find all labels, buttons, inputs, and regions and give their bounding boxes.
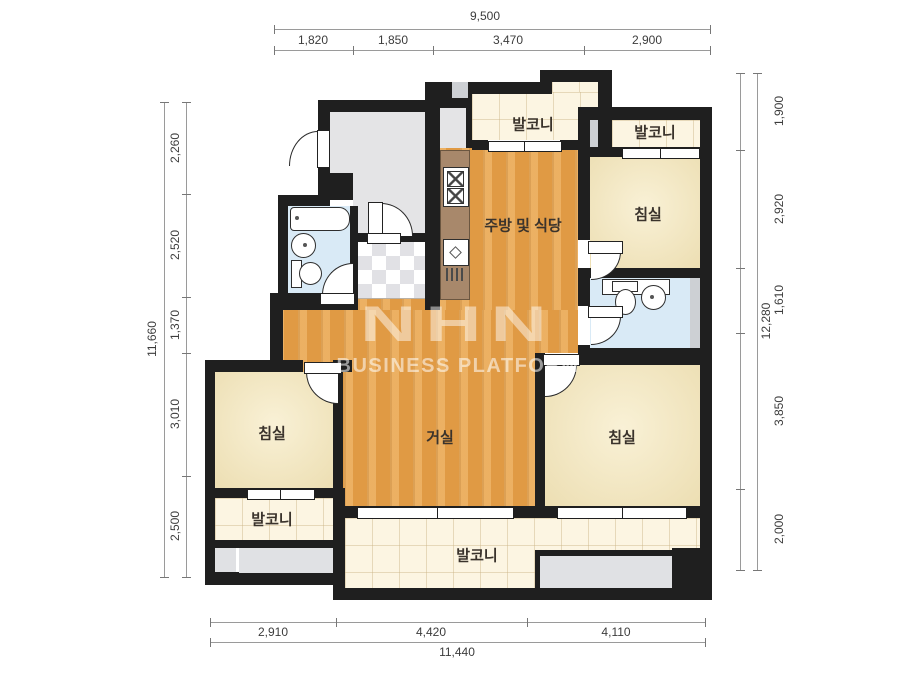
dim-bottom-total: 11,440 (439, 645, 475, 659)
dim-tick (182, 577, 191, 578)
kitchen-dining-label: 주방 및 식당 (484, 215, 561, 236)
dim-tick (210, 638, 211, 647)
dim-left-seg1: 2,520 (168, 230, 182, 260)
dim-tick (705, 618, 706, 627)
dim-line (210, 642, 705, 643)
dim-line (274, 29, 710, 30)
burner-icon (447, 188, 464, 204)
dim-tick (736, 333, 745, 334)
entry-door-leaf-icon (368, 202, 383, 237)
dim-right-seg4: 2,000 (772, 514, 786, 544)
bedroom-right-door-leaf-icon (543, 354, 580, 366)
wall (425, 112, 440, 310)
dim-tick (705, 638, 706, 647)
dim-bottom-seg2: 4,110 (601, 625, 630, 639)
wall (540, 70, 552, 94)
threshold-line (358, 298, 425, 299)
dim-top-seg2: 3,470 (493, 33, 523, 47)
dim-tick (736, 570, 745, 571)
wall (578, 140, 590, 240)
dim-tick (353, 46, 354, 55)
ac-platform (215, 548, 236, 572)
wall (580, 107, 712, 120)
window (488, 141, 562, 152)
faucet-icon (295, 216, 299, 220)
floor-plan-canvas: 발코니 발코니 침실 주방 및 식당 침실 거실 침실 발코니 발코니 NHN … (0, 0, 923, 676)
bathroom1-door-leaf-icon (320, 293, 355, 305)
dim-line (757, 73, 758, 570)
dim-tick (182, 353, 191, 354)
balcony-bottom-label: 발코니 (456, 545, 497, 566)
dim-right-seg3: 3,850 (772, 396, 786, 426)
hall-floor (535, 310, 578, 353)
dim-tick (336, 618, 337, 627)
dim-tick (182, 102, 191, 103)
dim-left-seg2: 1,370 (168, 310, 182, 340)
dim-tick (710, 25, 711, 34)
window (557, 507, 687, 519)
window (622, 148, 700, 159)
dim-left-seg0: 2,260 (168, 133, 182, 163)
dim-tick (753, 570, 762, 571)
dim-tick (182, 297, 191, 298)
burner-icon (447, 171, 464, 187)
entry-room-floor (330, 112, 425, 173)
dim-bottom-seg1: 4,420 (416, 625, 446, 639)
dim-top-total: 9,500 (470, 9, 500, 23)
wall (318, 173, 353, 200)
dim-line (210, 622, 705, 623)
dim-tick (210, 618, 211, 627)
balcony-top-right-label: 발코니 (634, 122, 675, 143)
wall (578, 353, 712, 365)
dim-right-total: 12,280 (759, 303, 773, 340)
dim-right-seg1: 2,920 (772, 194, 786, 224)
wall (333, 588, 712, 600)
dim-tick (274, 46, 275, 55)
dim-left-seg4: 2,500 (168, 511, 182, 541)
wall (440, 98, 468, 108)
bedroom-right-label: 침실 (608, 427, 636, 448)
dim-top-seg3: 2,900 (632, 33, 662, 47)
duct (590, 120, 598, 147)
pantry-niche (440, 108, 466, 148)
dim-tick (736, 268, 745, 269)
basin-drain-icon (303, 243, 307, 247)
dim-line (164, 102, 165, 577)
dim-right-seg0: 1,900 (772, 96, 786, 126)
wall (672, 548, 712, 600)
sink-drain-icon (650, 295, 654, 299)
bedroom-left-label: 침실 (258, 423, 286, 444)
dim-bottom-seg0: 2,910 (258, 625, 288, 639)
wall (205, 540, 333, 548)
dim-tick (182, 194, 191, 195)
wall (318, 100, 330, 130)
dim-tick (710, 46, 711, 55)
dim-left-seg3: 3,010 (168, 399, 182, 429)
bathtub-icon (290, 207, 350, 231)
dim-tick (433, 46, 434, 55)
dim-tick (736, 73, 745, 74)
dim-tick (527, 618, 528, 627)
dim-tick (160, 577, 169, 578)
balcony-top-center-label: 발코니 (512, 114, 553, 135)
bathroom2-door-leaf-icon (588, 306, 623, 318)
entry-tile-floor (358, 242, 425, 298)
threshold-floor (358, 298, 425, 310)
toilet-bowl-icon (299, 262, 322, 285)
vent-icon (446, 268, 466, 281)
dim-right-seg2: 1,610 (772, 285, 786, 315)
front-door-leaf-icon (317, 130, 330, 168)
bedroom-left-door-leaf-icon (304, 362, 342, 374)
dim-line (186, 102, 187, 577)
ac-platform (540, 556, 672, 588)
wall (205, 572, 345, 585)
wall (535, 353, 545, 518)
dim-line (740, 73, 741, 570)
dim-tick (182, 476, 191, 477)
front-door-arc-icon (289, 131, 318, 166)
wall (205, 360, 303, 372)
dim-top-seg1: 1,850 (378, 33, 408, 47)
window (247, 489, 315, 500)
wall (333, 488, 345, 588)
window (357, 507, 514, 519)
balcony-left-label: 발코니 (251, 509, 292, 530)
wall (318, 100, 425, 112)
entry-door-sill (367, 233, 401, 244)
wall (205, 360, 215, 585)
bedroom-top-right-label: 침실 (634, 204, 662, 225)
dim-tick (736, 150, 745, 151)
dim-left-total: 11,660 (145, 321, 159, 357)
duct (452, 82, 468, 98)
living-room-label: 거실 (426, 427, 454, 448)
wall (472, 140, 488, 150)
dim-tick (736, 489, 745, 490)
dim-tick (274, 25, 275, 34)
dim-line (274, 50, 710, 51)
bedroom-top-right-door-leaf-icon (588, 241, 623, 254)
dim-top-seg0: 1,820 (298, 33, 328, 47)
dim-tick (160, 102, 169, 103)
dim-tick (753, 73, 762, 74)
wall (425, 82, 552, 94)
duct (690, 278, 700, 348)
dim-tick (584, 46, 585, 55)
ac-platform (239, 548, 333, 573)
